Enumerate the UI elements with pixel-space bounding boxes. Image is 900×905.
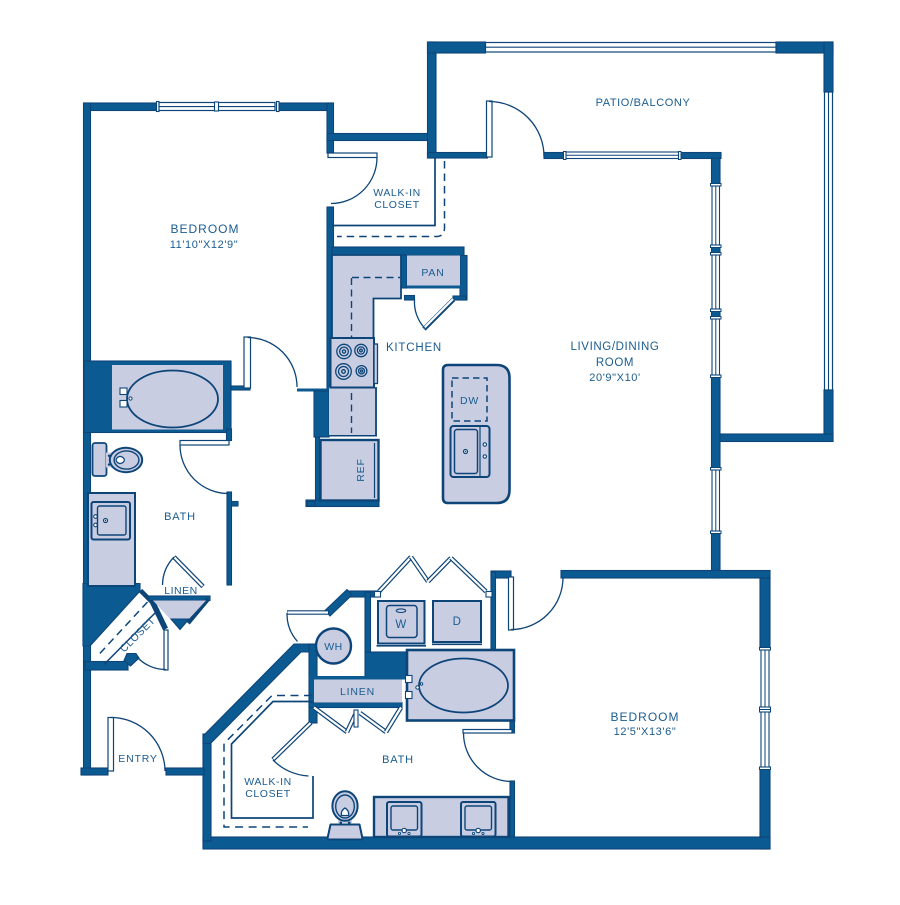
svg-text:WALK-IN: WALK-IN <box>244 776 292 788</box>
svg-text:ENTRY: ENTRY <box>118 753 157 765</box>
svg-text:LINEN: LINEN <box>340 686 375 698</box>
svg-text:PAN: PAN <box>421 267 444 279</box>
svg-text:W: W <box>395 619 406 631</box>
svg-text:LINEN: LINEN <box>164 585 197 597</box>
svg-text:BEDROOM: BEDROOM <box>170 222 239 236</box>
svg-text:20'9"X10': 20'9"X10' <box>589 372 640 384</box>
svg-text:BATH: BATH <box>382 754 414 766</box>
svg-text:WALK-IN: WALK-IN <box>373 187 421 199</box>
svg-text:CLOSET: CLOSET <box>374 199 420 211</box>
svg-text:BATH: BATH <box>164 511 196 523</box>
svg-text:PATIO/BALCONY: PATIO/BALCONY <box>596 97 691 109</box>
svg-text:DW: DW <box>460 395 479 407</box>
svg-text:BEDROOM: BEDROOM <box>610 710 679 724</box>
svg-text:CLOSET: CLOSET <box>245 788 291 800</box>
svg-text:D: D <box>453 616 462 628</box>
svg-text:11'10"X12'9": 11'10"X12'9" <box>170 239 239 251</box>
svg-text:REF: REF <box>355 458 367 481</box>
svg-text:ROOM: ROOM <box>596 357 634 369</box>
svg-text:WH: WH <box>324 641 343 653</box>
svg-text:LIVING/DINING: LIVING/DINING <box>571 341 660 353</box>
svg-text:KITCHEN: KITCHEN <box>386 342 442 354</box>
svg-text:12'5"X13'6": 12'5"X13'6" <box>614 726 677 738</box>
